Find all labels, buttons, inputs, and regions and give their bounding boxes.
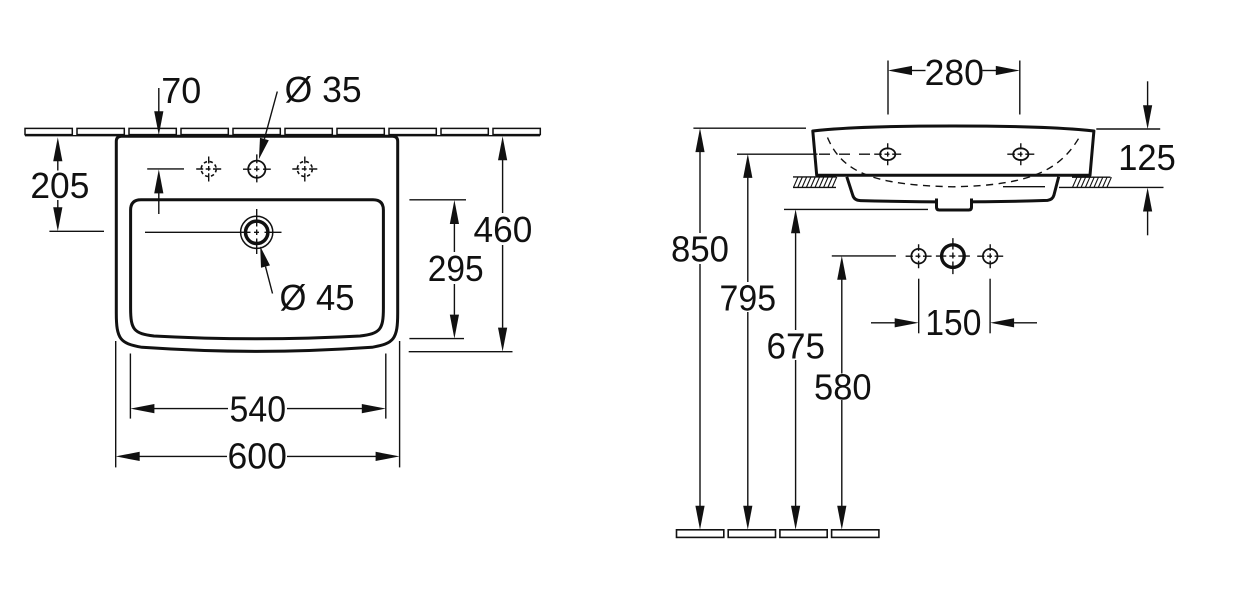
svg-text:70: 70 [161,70,201,111]
svg-text:580: 580 [814,366,872,407]
svg-text:280: 280 [925,52,984,93]
svg-text:460: 460 [474,209,533,250]
svg-text:850: 850 [671,228,729,269]
svg-text:150: 150 [925,302,981,343]
svg-text:Ø 35: Ø 35 [285,69,362,110]
svg-text:540: 540 [230,388,287,429]
svg-text:675: 675 [767,325,826,366]
svg-text:125: 125 [1118,137,1176,178]
svg-text:205: 205 [30,165,89,206]
svg-text:Ø 45: Ø 45 [280,277,355,318]
svg-text:295: 295 [428,248,484,289]
svg-text:600: 600 [228,436,287,477]
svg-text:795: 795 [720,277,777,318]
